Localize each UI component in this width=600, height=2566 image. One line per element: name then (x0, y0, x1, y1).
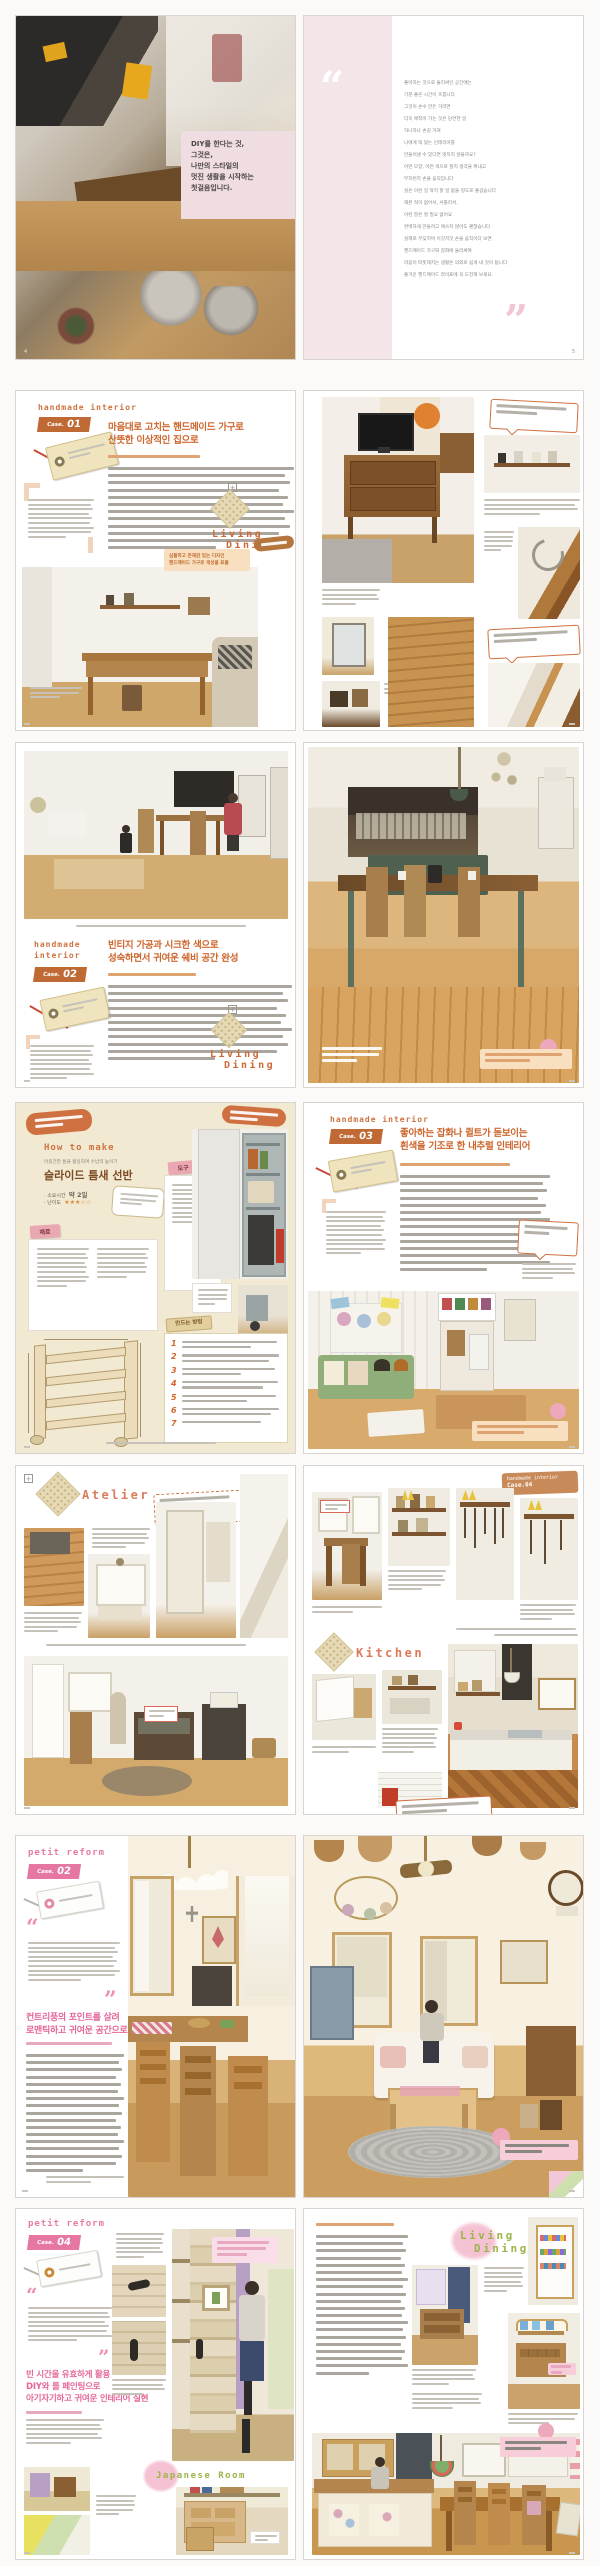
wall-clock (548, 1870, 583, 1906)
desk-leg (200, 677, 205, 715)
jar (398, 1520, 408, 1532)
diagram-side-board (124, 1340, 138, 1439)
chair-slat (185, 2088, 211, 2095)
page-kitchen: handmade interior Case.04 (303, 1465, 584, 1815)
table-leg (160, 821, 164, 855)
green-wall-right (268, 2269, 294, 2409)
point-callout (472, 1421, 568, 1441)
table-leg-green (348, 891, 354, 1001)
round-rug (102, 1766, 192, 1796)
page-case02-right (303, 742, 584, 1088)
page-number (569, 2552, 575, 2554)
small-dresser (54, 2477, 76, 2497)
hanging-tool (474, 1508, 476, 1548)
pompom (380, 1902, 392, 1914)
drawer (191, 2508, 211, 2518)
chair (488, 2483, 510, 2545)
photo-mirror (322, 617, 374, 675)
zigzag-decor (528, 1500, 542, 1510)
chest-drawer (350, 487, 436, 511)
materials-col1 (37, 1248, 89, 1289)
dimension-line (140, 1343, 141, 1437)
section-header: petit reform (28, 1848, 105, 1858)
page-case01-left: handmade interior Case.01 마음대로 고치는 핸드메이드… (15, 390, 296, 731)
shelf (518, 2331, 564, 2335)
footer-note (106, 1442, 216, 1447)
materials-col2 (97, 1248, 149, 1280)
hook-board (460, 1502, 510, 1507)
photo-desk-shelf-unit (508, 2313, 580, 2409)
page-number (569, 1807, 575, 1809)
drill-battery (122, 62, 152, 99)
photo-two-tone-wall (24, 2515, 90, 2555)
sewing-box (210, 1692, 238, 1708)
person-mother (224, 793, 242, 853)
step-item: 6 (171, 1408, 281, 1415)
lace-diamond-icon (35, 1471, 80, 1516)
owner-tag (328, 1150, 399, 1193)
point-bubble (487, 625, 580, 660)
callout-text-lines (477, 1425, 558, 1434)
hall-view (206, 1522, 230, 1582)
dishes (354, 1688, 372, 1718)
caption-lines (112, 2379, 166, 2397)
book-preview-scan: { "s1": { "left": { "overlay_lines": ["D… (0, 0, 600, 2566)
dimension-line (44, 1339, 128, 1340)
point-callout (500, 2140, 578, 2160)
counter-items (390, 1698, 430, 1714)
point-callout (500, 2437, 576, 2457)
table-runner (400, 2086, 460, 2096)
step-item: 7 (171, 1421, 281, 1423)
window-center (236, 1876, 295, 2006)
wire-basket (556, 2502, 580, 2537)
pompom (342, 1904, 354, 1916)
chair-cushion (527, 2501, 541, 2515)
purple-accent-wall (30, 2473, 50, 2497)
drawer (424, 2313, 460, 2321)
page-petit02-left: petit reform Case.02 “ ” 컨트리풍의 포인트를 살려로맨… (15, 1835, 296, 2198)
tab-text (230, 1110, 279, 1125)
stained-glass-panel (202, 1916, 236, 1964)
hanging-tool (530, 1520, 532, 1554)
intro-line: 그것은, (191, 150, 295, 161)
wood-cabinet (526, 2026, 576, 2096)
case-subtitle-line (108, 973, 196, 979)
close-quote: ” (504, 308, 528, 333)
note-lines (26, 2419, 104, 2447)
pendant-cord (510, 1648, 512, 1672)
chair-slat (492, 2489, 506, 2494)
chair-slat (458, 2497, 472, 2502)
spec-level: · 난이도 ★★★☆☆ (44, 1199, 91, 1206)
basket-floor (520, 2104, 538, 2128)
sidebar-info-lines (30, 1045, 94, 1082)
photo-hook-rack (456, 1488, 514, 1600)
tip-bubble (517, 1219, 579, 1256)
plus-icon: + (24, 1474, 33, 1483)
photo-tatami-room (24, 2467, 90, 2511)
wainscot (98, 1606, 142, 1620)
sewing-table (202, 1704, 246, 1760)
wreath-mobile (334, 1876, 398, 1920)
gray-rug (322, 539, 392, 583)
curtain (22, 567, 52, 687)
tip-bubble (489, 399, 578, 434)
desk-leg (326, 1546, 332, 1586)
open-quote: “ (26, 1922, 39, 1935)
hanging-tool (494, 1508, 496, 1544)
quilt-flower (357, 1314, 371, 1328)
label-lines (551, 2365, 571, 2374)
basket (220, 2487, 244, 2493)
photo-leather-strap (518, 527, 580, 619)
lattice-window (68, 1672, 112, 1712)
shelf-cup (532, 452, 541, 463)
point-callout (480, 1049, 572, 1069)
desk-leg (88, 677, 93, 715)
bracket-decor (88, 537, 93, 553)
curtain (135, 1881, 149, 1991)
vase (426, 1496, 435, 1508)
page-number (569, 1446, 575, 1448)
steps-label-tag: 만드는 방법 (166, 1315, 213, 1332)
pill-text (261, 541, 287, 550)
section-header: handmade interior (330, 1115, 429, 1124)
callout-text-lines (505, 2441, 567, 2450)
chair-front-2 (180, 2046, 216, 2176)
tin-canister-blur-2 (201, 286, 261, 341)
chair-slat (140, 2064, 166, 2070)
diagram-shelf-board (46, 1347, 126, 1364)
green-bench (318, 1355, 414, 1399)
intro-overlay: DIY를 한다는 것, 그것은, 나만의 스타일의 멋진 생활을 시작하는 첫걸… (181, 131, 295, 219)
chair (190, 811, 206, 855)
sidebar-info-lines (28, 499, 94, 540)
hanging-dried-flowers (484, 747, 524, 807)
shelf-item (124, 593, 134, 605)
jar (472, 1680, 482, 1691)
wall-shelf (100, 605, 180, 609)
tv (358, 413, 414, 451)
case-title: 빈티지 가공과 시크한 색으로성숙하면서 귀여운 쉐비 공간 완성 (108, 939, 296, 965)
bubble-text-lines (402, 1801, 480, 1814)
photo-caption-lines (30, 687, 82, 701)
assembly-diagram (28, 1339, 158, 1443)
page-4: DIY를 한다는 것, 그것은, 나만의 스타일의 멋진 생활을 시작하는 첫걸… (15, 15, 296, 360)
section-header: handmadeinterior (34, 939, 81, 961)
case-badge: Case.02 (33, 967, 87, 982)
white-mat (367, 1409, 425, 1437)
fridge (538, 777, 574, 849)
island-cabinet-floral (318, 2493, 432, 2547)
photo-cabinet-open (312, 1674, 376, 1740)
quilt-flower (377, 1312, 391, 1326)
lattice-window (504, 1299, 536, 1341)
hanging-basket (520, 1842, 546, 1860)
shelf-line (172, 2259, 190, 2263)
above-door-shelf (438, 1293, 496, 1321)
page-petit02-right (303, 1835, 584, 2198)
table-leg (546, 2511, 552, 2551)
photo-hallway-dresser (412, 2265, 478, 2365)
glass-door (270, 767, 288, 859)
window (538, 1678, 576, 1710)
window (352, 1496, 380, 1534)
section-header: petit reform (28, 2219, 105, 2229)
living-dining-stamp: Living Dining (460, 2229, 529, 2255)
sheer-curtain (245, 1876, 289, 1996)
cup (468, 871, 476, 880)
hook-board (524, 1514, 574, 1519)
page-number: 4 (24, 349, 27, 355)
bubble-text (35, 1115, 84, 1131)
blue-cabinet (310, 1966, 354, 2040)
photo-doorway (156, 1502, 236, 1638)
lamp-cord (440, 2435, 442, 2463)
chair-slat (140, 2078, 166, 2084)
book (202, 2487, 212, 2493)
photo-label-box (320, 1500, 350, 1513)
shelf (388, 1686, 436, 1690)
chair-slat (185, 2072, 211, 2079)
caption-lines (520, 1604, 576, 1622)
page-petit04-right: Living Dining (303, 2208, 584, 2560)
summary-list-lines (28, 2307, 112, 2344)
stool (122, 685, 142, 711)
glass-door (327, 2444, 353, 2470)
basket (352, 689, 368, 707)
close-quote: ” (104, 1994, 117, 2007)
shelf-top (184, 2493, 280, 2497)
corner-tab (221, 1105, 286, 1127)
person-opening-door (238, 2281, 268, 2431)
hanging-tool (484, 1508, 486, 1534)
caption-row (46, 1644, 246, 1649)
size-note-bubble (111, 1185, 165, 1219)
sewing-machine-blur (30, 1532, 70, 1554)
blue-dish (520, 2321, 528, 2330)
chest-drawer (350, 461, 436, 485)
chair-slat (458, 2487, 472, 2492)
photo-atelier-room (24, 1656, 288, 1806)
photo-kitchen-shelf (382, 1670, 442, 1724)
bubble-text-lines (524, 1225, 568, 1236)
stained-glass-flower (212, 1926, 224, 1948)
shelf-cup (514, 451, 523, 463)
chair-slat (527, 2491, 541, 2496)
page-petit04-left: petit reform Case.04 “ ” 빈 시간을 유효하게 활용DI… (15, 2208, 296, 2560)
label-lines (255, 2535, 277, 2544)
dress-form (110, 1692, 126, 1744)
page-number (569, 2190, 575, 2192)
bubble-text-lines (494, 630, 568, 642)
owner-tag (36, 1881, 104, 1920)
orange-decor (414, 403, 440, 429)
person-on-sofa (420, 2000, 446, 2066)
case-subtitle-line (26, 2042, 112, 2048)
body-text-lines (316, 2235, 408, 2379)
photo-storage-nook (322, 681, 380, 727)
dark-hood (396, 2433, 432, 2483)
page-case02-left: handmadeinterior Case.02 빈티지 가공과 시크한 색으로… (15, 742, 296, 1088)
tin-box (481, 1298, 491, 1310)
tin-box (442, 1298, 452, 1310)
person-at-counter (370, 2457, 390, 2493)
shelf-rail (246, 1173, 280, 1176)
tag-grommet (48, 1008, 60, 1020)
chair-slat (140, 2050, 166, 2056)
iron-handle (127, 2279, 150, 2291)
wreath-decor (30, 797, 46, 813)
chair-front-3 (228, 2056, 268, 2176)
drawer (215, 2508, 235, 2518)
jar (408, 1675, 418, 1685)
tv-stand (378, 447, 390, 453)
materials-box (28, 1239, 158, 1331)
tag-text-lines (350, 1161, 387, 1176)
photo-label-box (250, 2531, 280, 2544)
caption-lines (312, 1746, 376, 1755)
caster-wheel (30, 1435, 44, 1445)
photo-living-room-family (24, 751, 288, 919)
case-title: 마음대로 고치는 핸드메이드 가구로산뜻한 이상적인 집으로 (108, 421, 296, 447)
stars: ★★★☆☆ (64, 1199, 91, 1206)
door-handle (196, 2339, 203, 2359)
book-row (540, 2263, 566, 2269)
sink (508, 1730, 542, 1738)
green-dish (220, 2020, 234, 2028)
gingham-runner (132, 2022, 172, 2034)
painted-door (329, 2504, 359, 2536)
caption-lines (24, 1612, 82, 1635)
photo-hook-rack-2 (520, 1498, 578, 1600)
materials-label: 재료 (30, 1224, 61, 1239)
atelier-stamp: Atelier (82, 1488, 150, 1502)
howto-script: How to make (44, 1143, 115, 1153)
shelf (392, 1532, 446, 1536)
caption-lines (382, 1728, 438, 1756)
jar (458, 1682, 468, 1691)
diagram-side-board (34, 1344, 46, 1439)
kitchen-stamp: Kitchen (356, 1646, 424, 1660)
quilt-banner (381, 1297, 400, 1309)
kitchen-doorway (440, 1321, 494, 1391)
owner-tag (39, 986, 110, 1031)
cushion (348, 1361, 368, 1385)
caption-row (456, 1628, 576, 1633)
photo-plank-door-scene (172, 2229, 294, 2461)
photo-floor-sewing (24, 1528, 84, 1606)
bubble-caption-lines (522, 1263, 576, 1281)
shelf-line (172, 2339, 190, 2343)
kettle (454, 1722, 462, 1730)
stored-tray (248, 1181, 274, 1203)
hanging-basket (358, 1836, 392, 1862)
chair-slat (234, 2082, 262, 2089)
tip-circle-badge (550, 1403, 566, 1419)
chair-slat (185, 2056, 211, 2063)
caption-lines (412, 2393, 482, 2411)
page-number (24, 1446, 30, 1448)
case-subtitle-line (400, 1163, 510, 1169)
wood-box (186, 2527, 214, 2551)
kitchen-shelves (356, 813, 466, 839)
table-leg (216, 821, 220, 855)
caption-lines (388, 1570, 446, 1593)
stained-glass-lamp (430, 2461, 454, 2477)
pink-cushion (462, 2046, 488, 2068)
intro-line: 첫걸음입니다. (191, 183, 295, 194)
window-red-blur (212, 34, 242, 82)
caption-lines (116, 2233, 164, 2261)
wall-decor-frames (416, 2269, 446, 2305)
caption-lines (92, 1528, 150, 1551)
quilt-banner (330, 1297, 349, 1309)
basket (252, 1738, 276, 1758)
jar (416, 1518, 428, 1532)
step-item: 1 (171, 1341, 281, 1348)
intro-line: 멋진 생활을 시작하는 (191, 172, 295, 183)
case-subtitle-line (108, 455, 200, 461)
callout-text-lines (505, 2144, 569, 2153)
note-header-line (26, 2411, 82, 2417)
cross-decor (186, 1906, 198, 1922)
case-title: 좋아하는 잡화나 퀼트가 돋보이는흰색을 기조로 한 내추럴 인테리어 (400, 1127, 582, 1153)
section-subtitle-line (316, 2223, 394, 2229)
caption-lines (312, 1606, 382, 1615)
fire-extinguisher (276, 1229, 284, 1263)
photo-slide-shelf (192, 1129, 288, 1279)
case-title: 컨트리풍의 포인트를 살려로맨틱하고 귀여운 공간으로 (26, 2012, 131, 2037)
cup (398, 871, 406, 880)
diagram-shelf-board (46, 1369, 126, 1386)
section-header: handmade interior (38, 403, 137, 412)
wood-dresser (420, 2309, 464, 2339)
air-conditioner (556, 1906, 578, 1916)
basket (330, 691, 348, 707)
photo-caption-white (322, 1047, 382, 1065)
chair (454, 2481, 476, 2545)
page-number (569, 1080, 575, 1082)
book-row (540, 2249, 566, 2255)
case-badge: Case.04 (27, 2235, 81, 2250)
plaid-blanket (218, 645, 252, 669)
shelf-item (106, 595, 114, 605)
page-case03-right: handmade interior Case.03 좋아하는 잡화나 퀼트가 돋… (303, 1102, 584, 1454)
open-cabinet-door (316, 1676, 354, 1722)
tall-chair (70, 1712, 92, 1764)
note-lines (217, 2241, 269, 2256)
window-left (130, 1876, 174, 1996)
wall-shelf-decor (500, 1940, 548, 1984)
pink-cushion (380, 2046, 406, 2068)
tag-text-lines (68, 443, 107, 461)
label-lines (149, 1710, 175, 1719)
niche-flowers (212, 2292, 220, 2304)
callout-text-lines (485, 1053, 562, 1062)
photo-vintage-dining (308, 747, 579, 1083)
zigzag-decor (462, 1490, 476, 1500)
hanging-tool (464, 1508, 466, 1538)
quilt-hanging (330, 1303, 402, 1353)
trash-bin (248, 1215, 274, 1265)
chair (138, 809, 154, 853)
desk-leg (360, 1546, 366, 1586)
pink-label (548, 2363, 576, 2375)
tag-grommet (44, 1898, 56, 1910)
photo-white-door-column (240, 1474, 288, 1638)
